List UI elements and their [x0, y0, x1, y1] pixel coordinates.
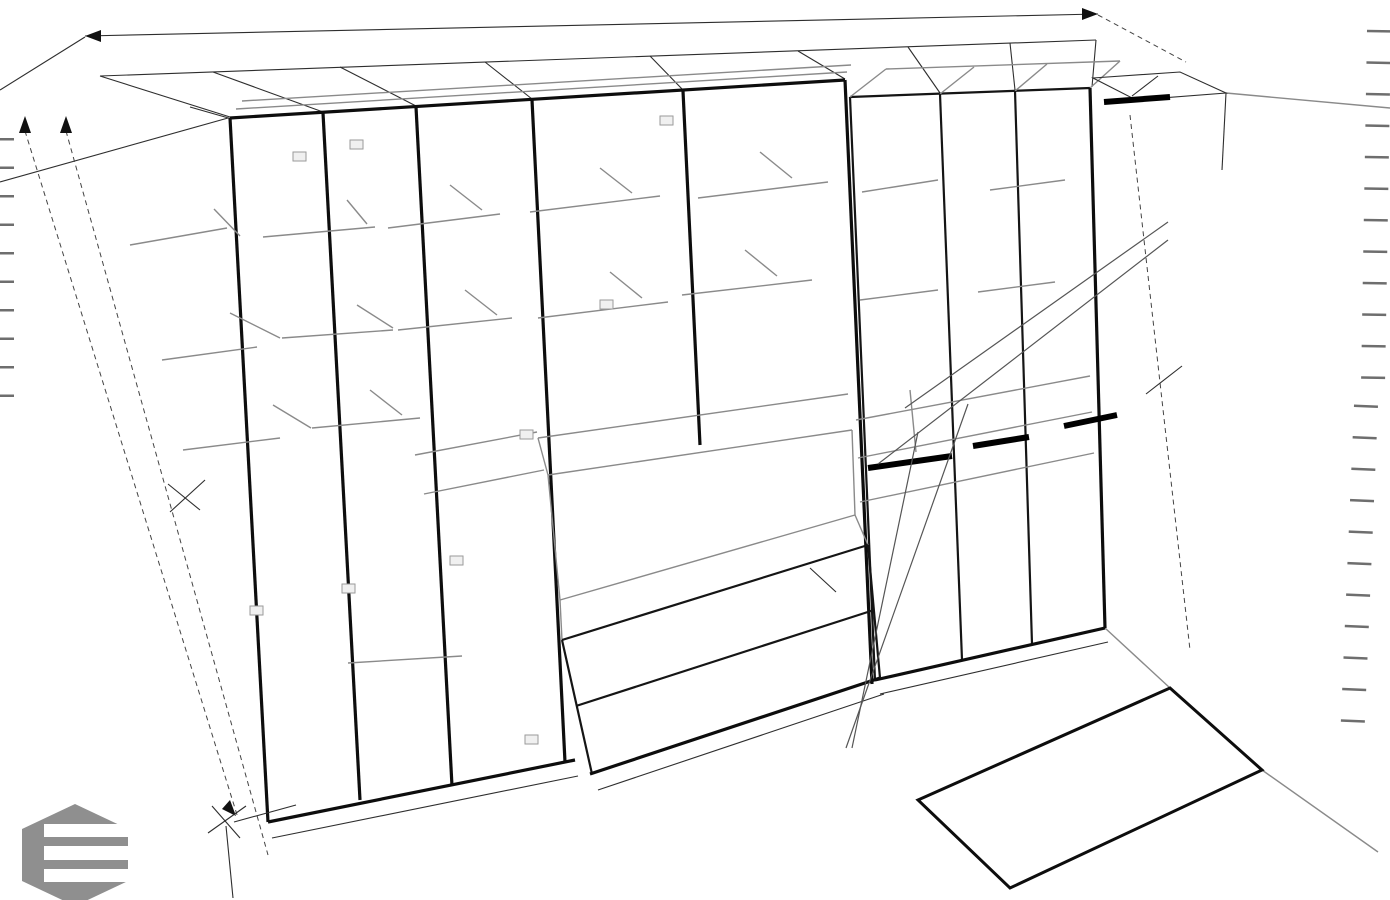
tv-section [538, 394, 884, 790]
rod-bar-icon [973, 437, 1029, 446]
rod-bar-icon [1104, 97, 1170, 102]
left-dimensions [19, 107, 268, 855]
evo-logo [22, 804, 132, 900]
cabinet-carcass [230, 61, 1226, 838]
hinge-marks [250, 116, 673, 744]
right-block-bands [856, 76, 1170, 502]
dim-arrow-right-icon [1082, 8, 1098, 20]
wardrobe-technical-drawing [0, 0, 1390, 900]
right-dimension [1130, 115, 1190, 650]
wall-hatching [7, 30, 1379, 742]
floor-panel [918, 688, 1262, 888]
dim-arrow-left-icon [85, 30, 101, 42]
